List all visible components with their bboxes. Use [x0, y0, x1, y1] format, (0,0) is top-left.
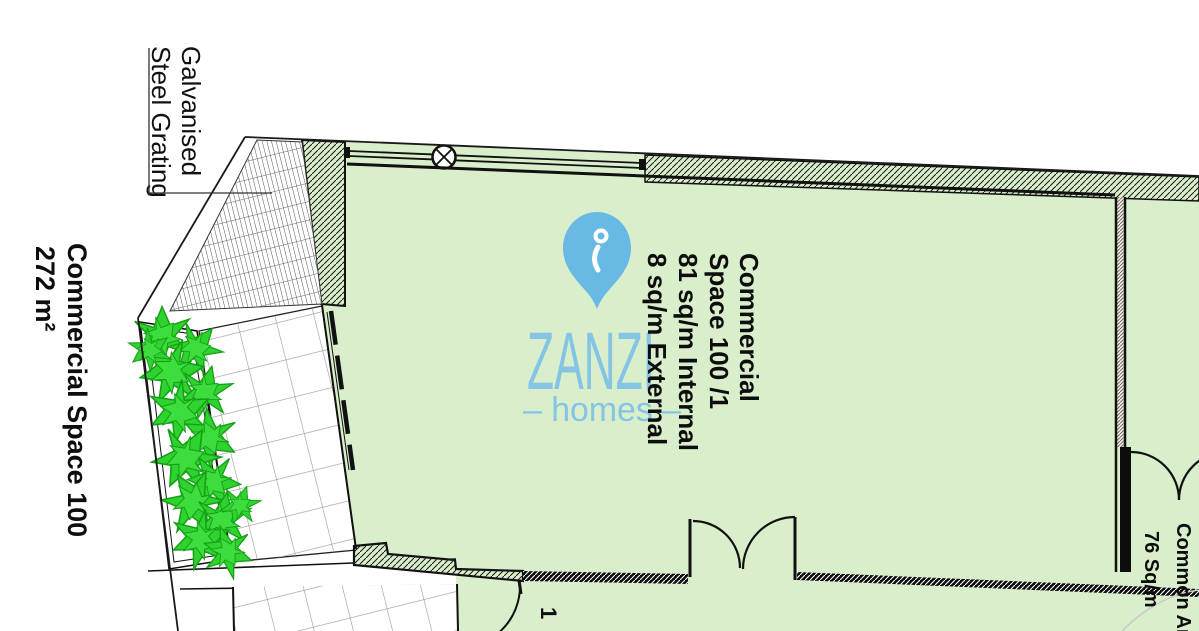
property-title-label: Commercial Space 100 272 m²: [30, 243, 92, 537]
unit-info-line2: Space 100 /1: [704, 253, 734, 409]
common-area-line2: 76 Sq/m: [1140, 531, 1162, 608]
floor-plan-drawing: ZANZI – homes – Galvanised Steel Grating…: [0, 0, 1199, 631]
property-title-line1: Commercial Space 100: [62, 243, 92, 537]
grating-label-line2: Steel Grating: [146, 46, 176, 198]
unit-info-line3: 81 sq/m Internal: [673, 253, 703, 451]
floor-plan-canvas: ZANZI – homes – Galvanised Steel Grating…: [0, 0, 1199, 631]
lower-tiles: [233, 584, 458, 631]
unit-info-line4: 8 sq/m External: [642, 253, 672, 445]
column-symbol-icon: [433, 146, 456, 169]
grating-label-line1: Galvanised: [176, 46, 206, 176]
property-title-line2: 272 m²: [30, 246, 60, 332]
door-number-mark: 1: [536, 607, 561, 619]
unit-info-line1: Commercial: [734, 253, 764, 402]
common-area-line1: Common Area: [1172, 523, 1194, 631]
